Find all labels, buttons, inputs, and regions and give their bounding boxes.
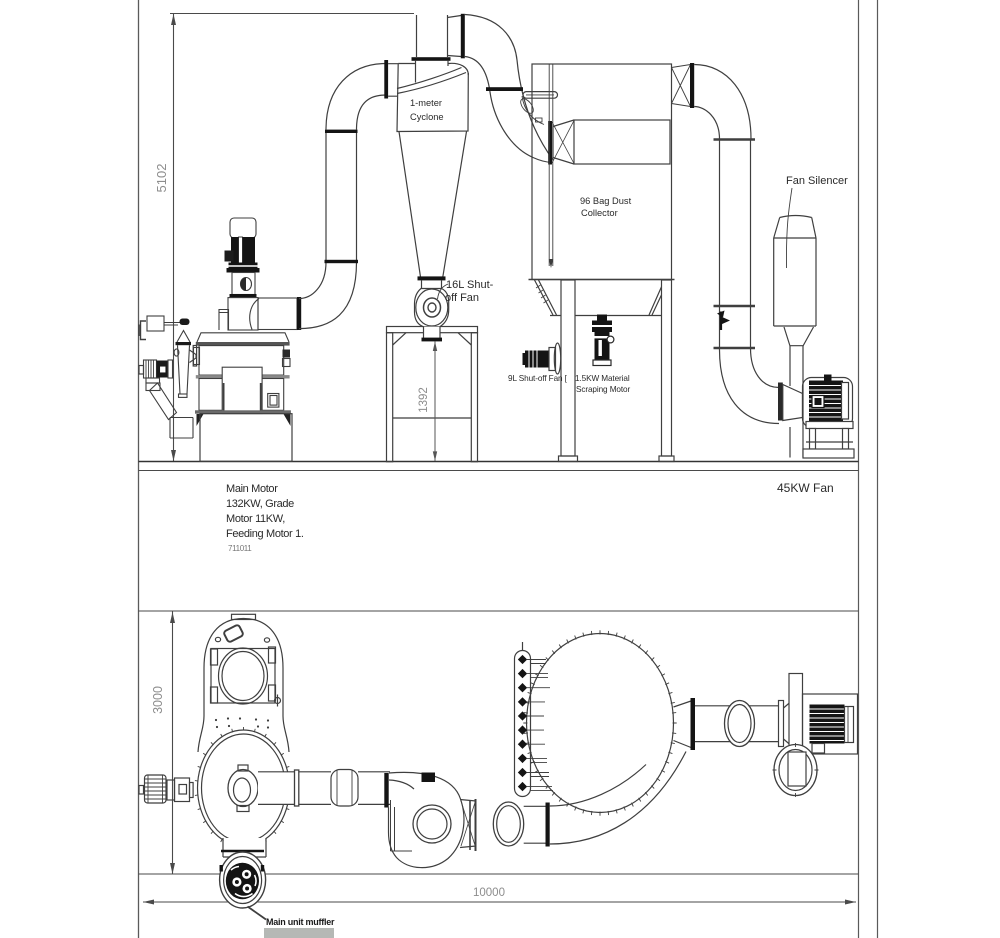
svg-text:5102: 5102: [154, 164, 169, 193]
svg-text:132KW, Grade: 132KW, Grade: [226, 498, 294, 510]
svg-text:9L Shut-off Fan [: 9L Shut-off Fan [: [508, 374, 568, 383]
svg-text:Cyclone: Cyclone: [410, 112, 444, 122]
svg-text:16L Shut-: 16L Shut-: [446, 279, 494, 291]
svg-text:1.5KW Material: 1.5KW Material: [575, 374, 630, 383]
svg-text:1392: 1392: [418, 387, 430, 413]
svg-text:711011: 711011: [228, 544, 252, 553]
svg-text:Collector: Collector: [581, 208, 618, 218]
svg-text:Main Motor: Main Motor: [226, 483, 278, 495]
svg-text:Main unit muffler: Main unit muffler: [266, 917, 335, 927]
svg-text:Motor 11KW,: Motor 11KW,: [226, 513, 285, 525]
svg-text:3000: 3000: [151, 686, 165, 714]
svg-text:Feeding Motor 1.: Feeding Motor 1.: [226, 528, 304, 540]
svg-text:1-meter: 1-meter: [410, 98, 442, 108]
svg-text:96 Bag Dust: 96 Bag Dust: [580, 196, 632, 206]
svg-text:off Fan: off Fan: [445, 292, 479, 304]
svg-text:Fan Silencer: Fan Silencer: [786, 175, 848, 187]
svg-text:10000: 10000: [473, 887, 505, 899]
svg-text:45KW Fan: 45KW Fan: [777, 481, 834, 495]
svg-text:Scraping Motor: Scraping Motor: [576, 385, 630, 394]
